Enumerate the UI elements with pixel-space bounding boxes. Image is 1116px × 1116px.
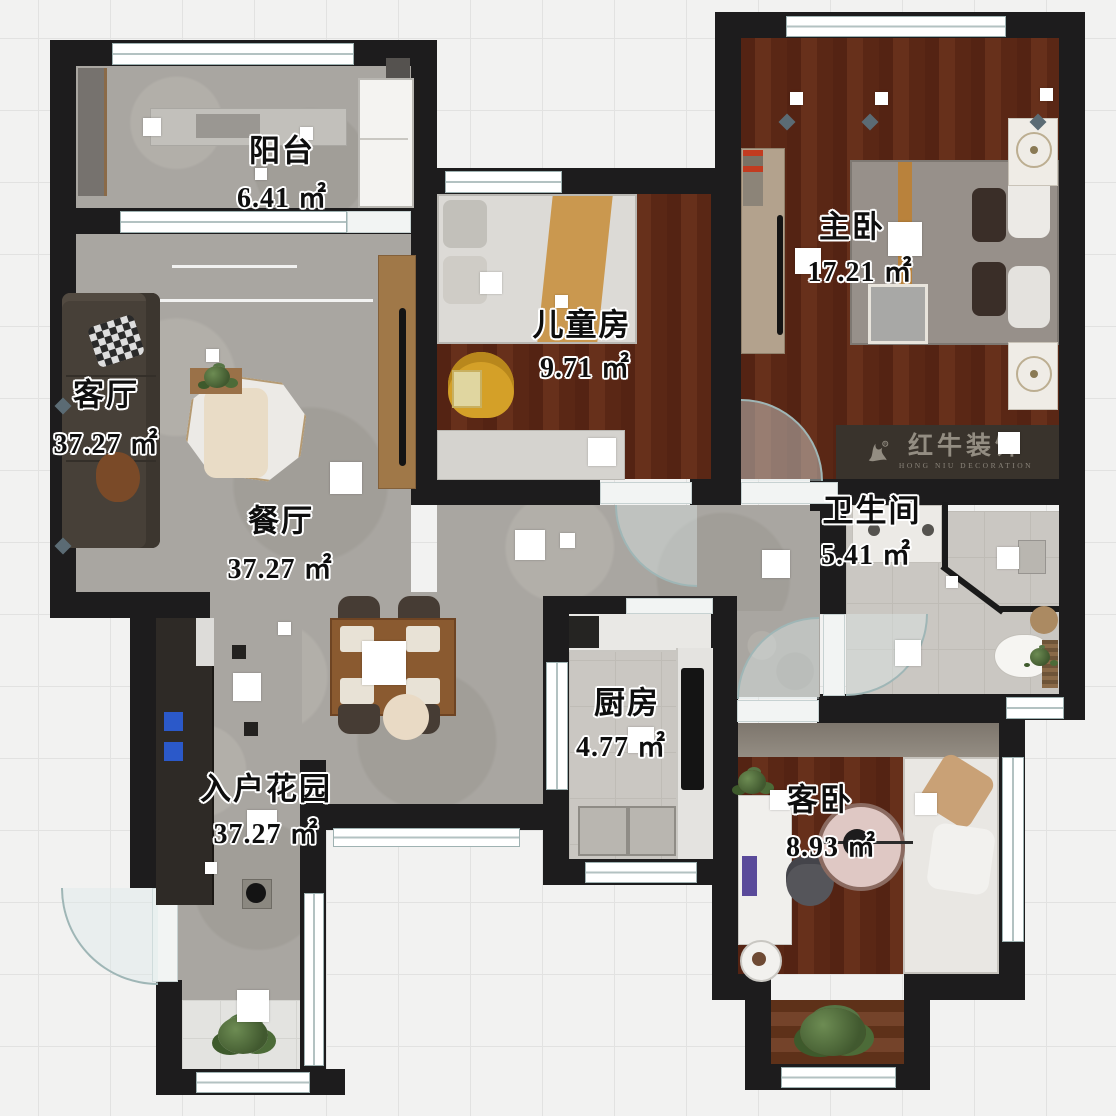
balcony-sink-divider xyxy=(360,138,408,140)
light-marker xyxy=(205,862,217,874)
light-marker xyxy=(237,990,269,1022)
room-label-master: 主卧 xyxy=(819,202,885,247)
light-marker xyxy=(762,550,790,578)
wall-segment xyxy=(156,1069,182,1095)
room-label-balcony: 阳台 xyxy=(249,126,315,171)
floor-drain-dot xyxy=(246,883,266,903)
master-tv xyxy=(777,215,783,335)
wall-segment xyxy=(712,697,738,1000)
balcony-large-plant xyxy=(800,1008,866,1056)
children-door-threshold xyxy=(600,482,692,504)
master-pillow-white xyxy=(1008,266,1050,328)
wall-segment xyxy=(1059,505,1085,720)
guest-plant xyxy=(738,770,766,794)
garden-bottom-window xyxy=(196,1072,310,1093)
wall-segment xyxy=(1059,12,1085,505)
room-label-dining: 餐厅 xyxy=(248,496,314,541)
light-marker xyxy=(206,349,219,362)
balcony-mat xyxy=(78,68,107,196)
master-top-window xyxy=(786,16,1006,37)
room-area-guest: 8.93 ㎡ xyxy=(786,825,876,865)
dining-south-sill xyxy=(333,828,520,847)
nightstand-lamp xyxy=(1016,356,1052,392)
bathroom-plant xyxy=(1030,648,1050,666)
brand-name-en: HONG NIU DECORATION xyxy=(899,462,1033,470)
light-marker xyxy=(362,641,406,685)
light-marker xyxy=(233,673,261,701)
guest-right-window xyxy=(1002,757,1024,942)
room-label-living-room: 客厅 xyxy=(73,370,139,415)
curtain-line xyxy=(172,265,297,268)
table-plant xyxy=(204,366,230,388)
bull-logo-icon: R xyxy=(862,437,892,467)
light-marker xyxy=(790,92,803,105)
brand-logo-band: R 红牛装饰 HONG NIU DECORATION xyxy=(836,425,1059,479)
wall-segment xyxy=(712,697,737,723)
master-shelf-red-items xyxy=(743,150,763,206)
children-picture xyxy=(452,370,482,408)
master-stool xyxy=(868,284,928,344)
light-marker xyxy=(480,272,502,294)
light-marker xyxy=(875,92,888,105)
room-area-bathroom: 5.41 ㎡ xyxy=(821,533,911,573)
room-area-balcony: 6.41 ㎡ xyxy=(237,176,327,216)
kitchen-bottom-window xyxy=(585,862,697,883)
wall-segment xyxy=(326,804,543,830)
nightstand-lamp xyxy=(1016,132,1052,168)
dining-chair xyxy=(338,704,380,734)
master-pillow-dark xyxy=(972,188,1006,242)
light-marker xyxy=(143,118,161,136)
room-label-kitchen: 厨房 xyxy=(594,678,660,723)
wall-segment xyxy=(411,479,600,505)
cabinet-blue-box xyxy=(164,742,183,761)
vanity-faucet xyxy=(922,524,934,536)
guest-laptop xyxy=(742,856,757,896)
kitchen-stove xyxy=(681,668,704,790)
tv-cabinet xyxy=(378,255,416,489)
entry-door-arc xyxy=(61,888,158,985)
round-rug xyxy=(383,694,429,740)
light-marker xyxy=(946,576,958,588)
room-label-guest: 客卧 xyxy=(787,775,853,820)
tv-screen xyxy=(399,308,406,466)
children-bed-pillow xyxy=(443,200,487,248)
bathroom-door-leaf xyxy=(823,614,845,696)
light-marker xyxy=(998,432,1020,454)
balcony-sink-unit xyxy=(358,78,414,208)
kitchen-sink xyxy=(578,806,628,856)
guest-closet xyxy=(738,723,999,757)
shower-head-pad xyxy=(1018,540,1046,574)
wall-segment xyxy=(817,697,1025,723)
balcony-washer xyxy=(386,58,410,78)
wall-segment xyxy=(715,12,741,479)
garden-right-window xyxy=(304,893,324,1066)
light-marker xyxy=(560,533,575,548)
room-label-bathroom: 卫生间 xyxy=(823,486,922,531)
place-setting xyxy=(406,626,440,652)
room-area-master: 17.21 ㎡ xyxy=(807,250,912,290)
shower-partition-v xyxy=(942,502,948,568)
guest-stool-dot xyxy=(752,952,766,966)
light-marker xyxy=(278,622,291,635)
room-label-children: 儿童房 xyxy=(533,300,632,345)
light-marker xyxy=(330,462,362,494)
light-marker xyxy=(997,547,1019,569)
svg-text:R: R xyxy=(883,442,887,448)
light-marker xyxy=(915,793,937,815)
small-balcony-window xyxy=(781,1067,896,1088)
coffee-table xyxy=(204,388,268,478)
dark-marker xyxy=(244,722,258,736)
guest-pillow-white xyxy=(926,822,997,896)
master-pillow-dark xyxy=(972,262,1006,316)
kitchen-left-window xyxy=(546,662,568,790)
light-marker xyxy=(895,640,921,666)
wall-segment xyxy=(715,479,741,505)
room-area-living-room: 37.27 ㎡ xyxy=(53,422,158,462)
room-area-kitchen: 4.77 ㎡ xyxy=(576,725,666,765)
kitchen-sink xyxy=(628,806,676,856)
balcony-top-window xyxy=(112,43,354,65)
room-label-entry-garden: 入户花园 xyxy=(200,764,332,809)
room-area-children: 9.71 ㎡ xyxy=(540,346,630,386)
balcony-door-threshold xyxy=(347,211,411,233)
light-marker xyxy=(1040,88,1053,101)
cabinet-fridge xyxy=(196,618,214,666)
cabinet-blue-box xyxy=(164,712,183,731)
wall-segment xyxy=(130,618,156,888)
bathroom-bottom-window xyxy=(1006,697,1064,719)
kitchen-door-threshold xyxy=(626,598,713,614)
wall-segment xyxy=(156,980,182,1069)
light-marker xyxy=(515,530,545,560)
floor-plan: R 红牛装饰 HONG NIU DECORATION xyxy=(0,0,1116,1116)
light-marker xyxy=(588,438,616,466)
room-area-dining: 37.27 ㎡ xyxy=(227,547,332,587)
kitchen-dark-unit xyxy=(569,616,599,648)
room-area-entry-garden: 37.27 ㎡ xyxy=(213,812,318,852)
wall-segment xyxy=(50,592,210,618)
guest-door-threshold xyxy=(737,700,819,722)
dark-marker xyxy=(232,645,246,659)
bathroom-stool xyxy=(1030,606,1058,634)
children-top-window xyxy=(445,171,562,193)
